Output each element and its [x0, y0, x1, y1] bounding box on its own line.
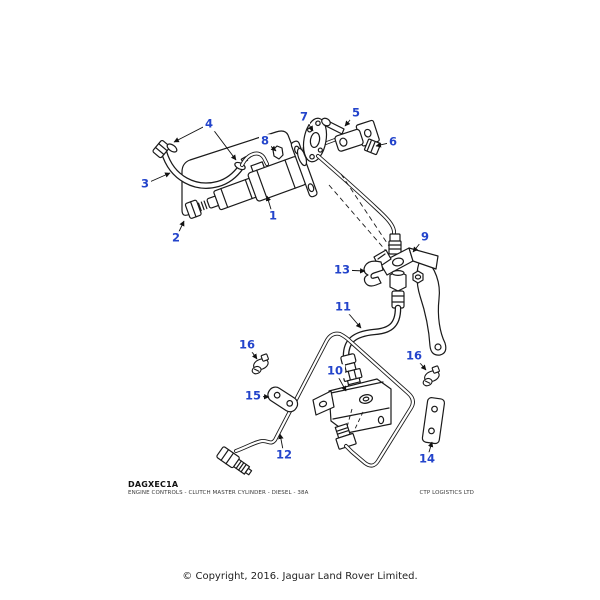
outlet-pipe [318, 156, 401, 254]
part-callout-6[interactable]: 6 [387, 135, 399, 149]
grommet-16-left [248, 354, 272, 375]
part-callout-15[interactable]: 15 [243, 389, 263, 403]
bracket-9 [374, 248, 446, 355]
part-callout-7[interactable]: 7 [298, 110, 310, 124]
locknut-8 [273, 146, 283, 159]
part-callout-4[interactable]: 4 [203, 117, 215, 131]
part-callout-10[interactable]: 10 [325, 364, 345, 378]
part-callout-11[interactable]: 11 [333, 300, 353, 314]
grommet-16-right [419, 366, 443, 387]
part-callout-16[interactable]: 16 [237, 338, 257, 352]
diagram-subtitle: ENGINE CONTROLS - CLUTCH MASTER CYLINDER… [128, 490, 308, 496]
part-callout-1[interactable]: 1 [267, 209, 279, 223]
diagram-canvas: 1234567891011121314151616 DAGXEC1A ENGIN… [0, 0, 600, 600]
part-callout-2[interactable]: 2 [170, 231, 182, 245]
plate-15 [265, 384, 300, 414]
hose-clip-front [166, 142, 178, 153]
bracket-10 [313, 379, 391, 433]
part-callout-14[interactable]: 14 [417, 452, 437, 466]
parts-diagram-artwork [0, 0, 600, 600]
page: { "diagram": { "code": "DAGXEC1A", "subt… [0, 0, 600, 600]
part-callout-12[interactable]: 12 [274, 448, 294, 462]
part-callout-5[interactable]: 5 [350, 106, 362, 120]
diagram-code: DAGXEC1A [128, 480, 178, 489]
part-callout-16[interactable]: 16 [404, 349, 424, 363]
part-callout-3[interactable]: 3 [139, 177, 151, 191]
part-callout-9[interactable]: 9 [419, 230, 431, 244]
vendor-name: CTP LOGISTICS LTD [419, 490, 474, 496]
clip-13 [364, 261, 383, 286]
part-callout-13[interactable]: 13 [332, 263, 352, 277]
copyright-notice: © Copyright, 2016. Jaguar Land Rover Lim… [0, 571, 600, 582]
part-callout-8[interactable]: 8 [259, 134, 271, 148]
junction-adapter [390, 271, 406, 308]
plate-14 [422, 397, 445, 444]
hose-3 [152, 140, 247, 186]
